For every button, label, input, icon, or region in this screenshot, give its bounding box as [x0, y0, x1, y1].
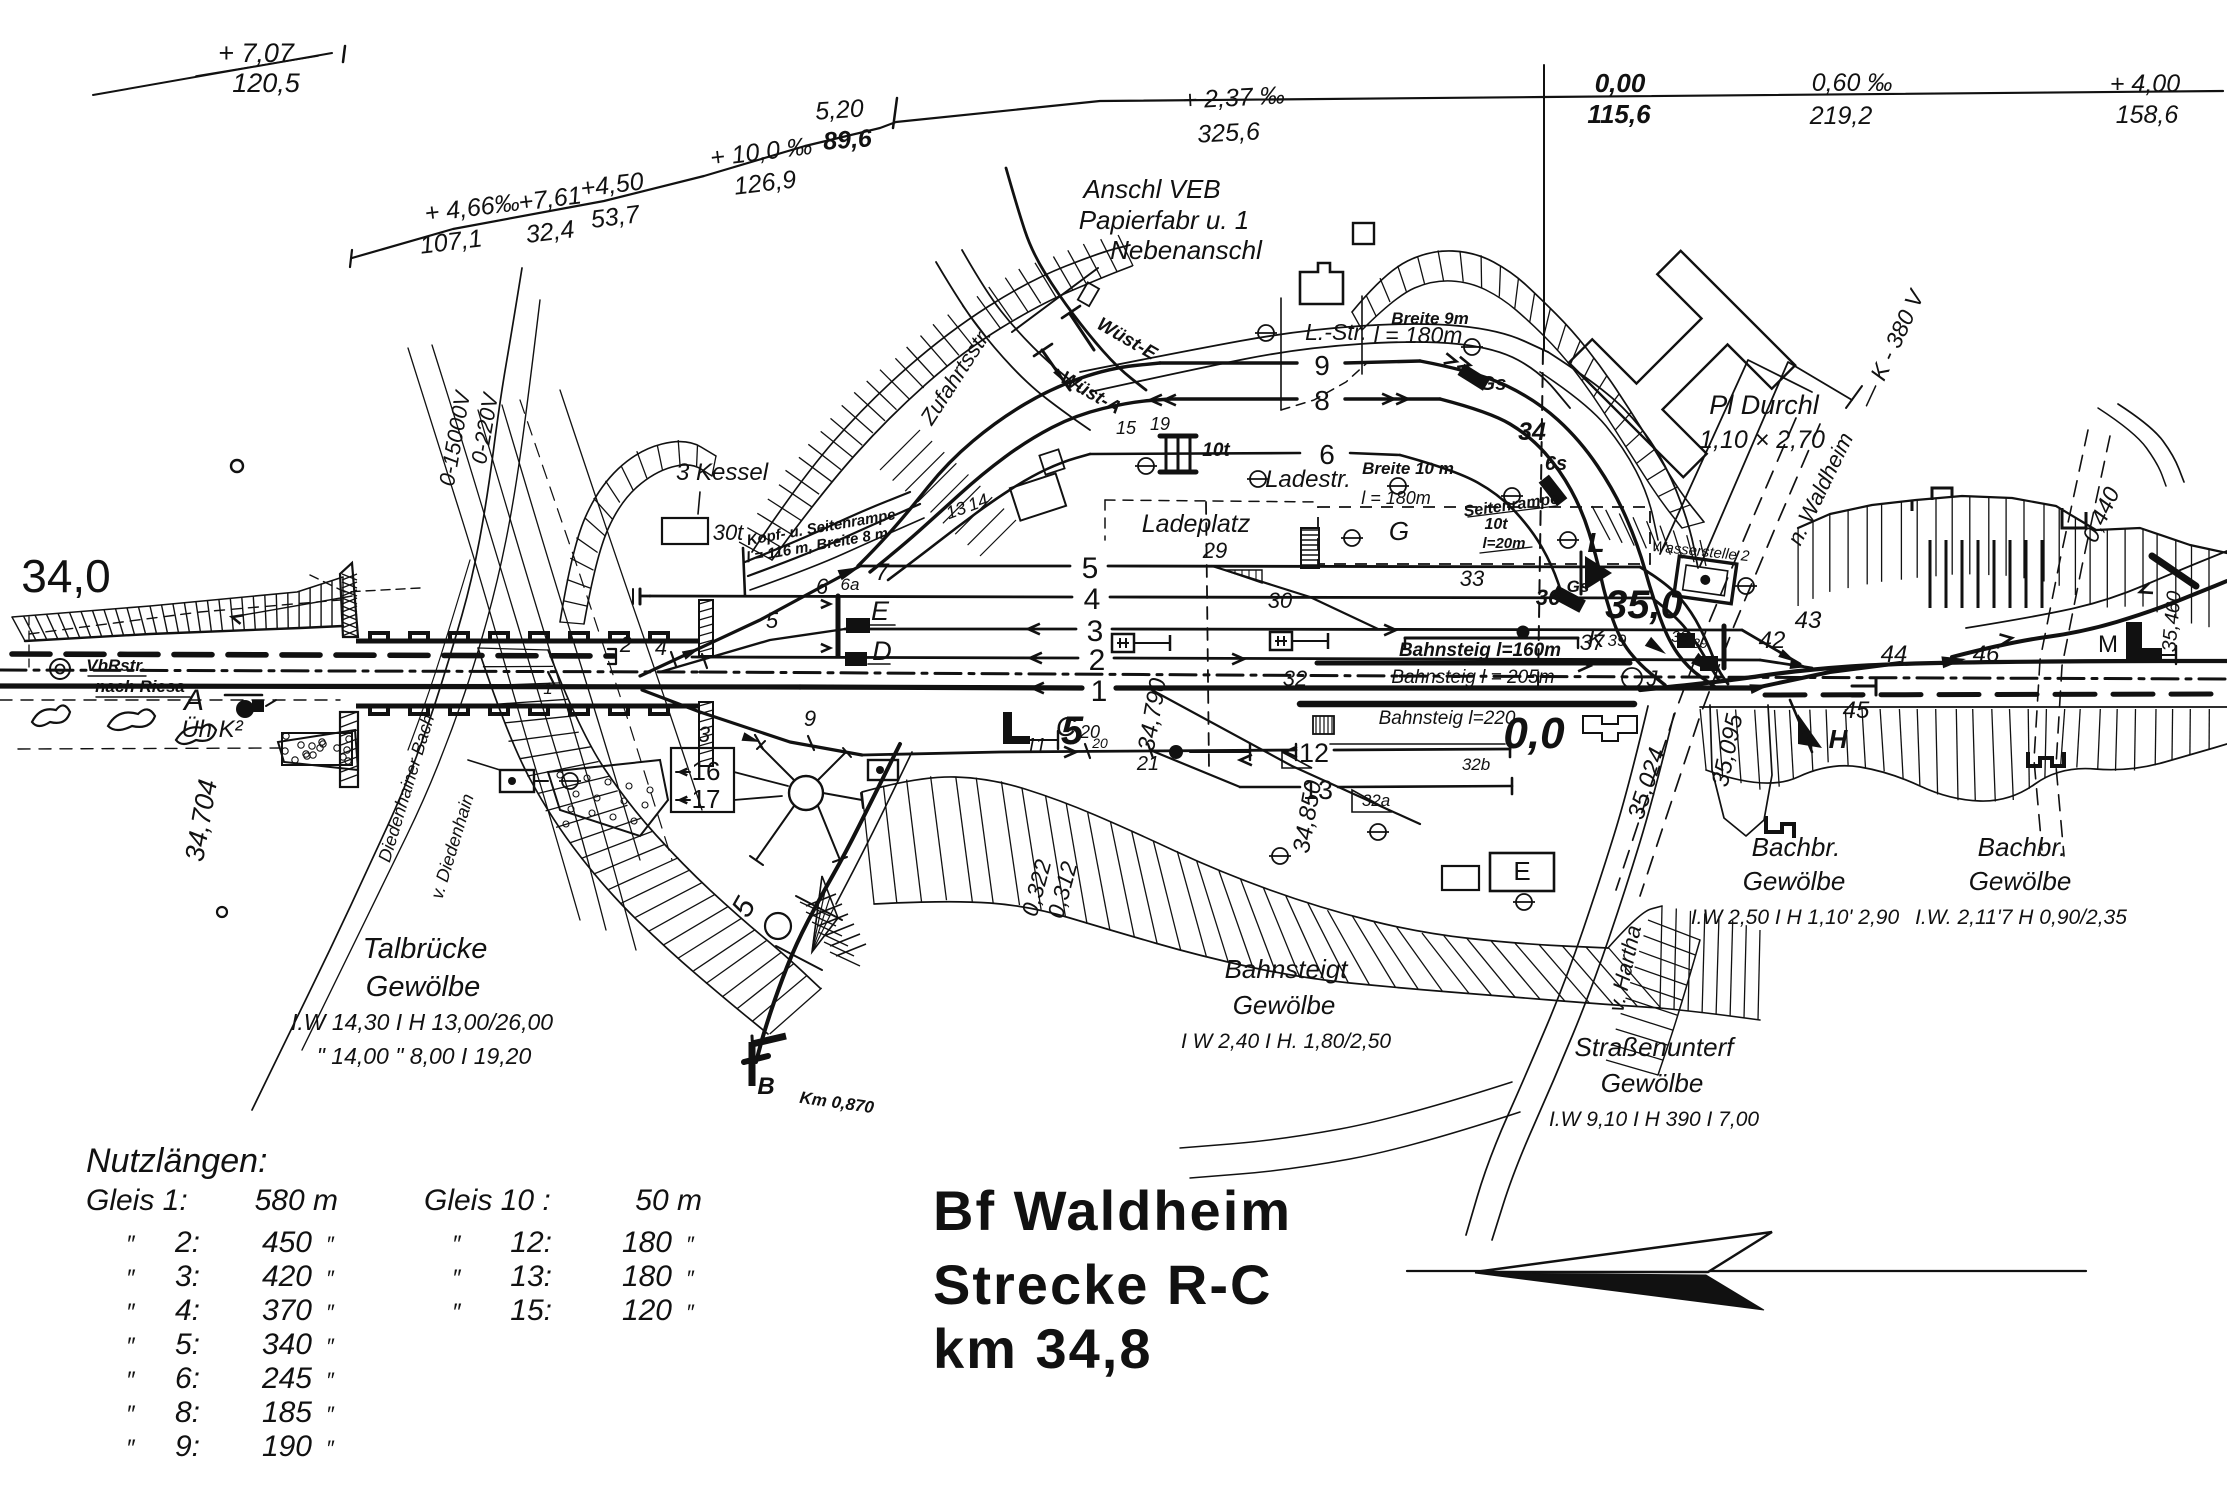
svg-text:″: ″	[326, 1266, 335, 1291]
svg-text:2:: 2:	[174, 1226, 200, 1259]
svg-text:9: 9	[804, 706, 816, 731]
svg-text:33: 33	[1460, 566, 1485, 591]
svg-text:Anschl VEB: Anschl VEB	[1081, 174, 1220, 204]
svg-text:Ladestr.: Ladestr.	[1265, 466, 1351, 493]
svg-text:325,6: 325,6	[1197, 117, 1261, 148]
svg-text:″: ″	[686, 1266, 695, 1291]
svg-text:10t: 10t	[1202, 440, 1230, 461]
svg-text:" 14,00 " 8,00 I 19,20: " 14,00 " 8,00 I 19,20	[317, 1043, 532, 1069]
svg-text:+ 4,00: + 4,00	[2110, 70, 2180, 98]
svg-text:4:: 4:	[175, 1294, 200, 1327]
svg-text:Ladeplatz: Ladeplatz	[1142, 510, 1251, 538]
svg-text:32,4: 32,4	[524, 215, 576, 249]
svg-text:″: ″	[326, 1232, 335, 1257]
svg-text:I.W. 2,11'7 H 0,90/2,35: I.W. 2,11'7 H 0,90/2,35	[1915, 906, 2127, 929]
svg-text:43: 43	[1795, 607, 1822, 634]
svg-text:5: 5	[1082, 552, 1099, 585]
svg-text:20: 20	[1091, 735, 1108, 751]
svg-text:Gewölbe: Gewölbe	[1743, 866, 1846, 896]
svg-text:11: 11	[1026, 735, 1047, 757]
svg-text:5: 5	[766, 608, 779, 633]
svg-text:5,20: 5,20	[814, 94, 865, 125]
svg-text:17: 17	[692, 784, 721, 814]
svg-text:D: D	[872, 636, 892, 666]
svg-text:45: 45	[1843, 697, 1870, 724]
svg-text:16: 16	[692, 756, 721, 786]
svg-text:J: J	[1646, 666, 1659, 691]
svg-text:B: B	[757, 1073, 774, 1100]
svg-text:I.W 9,10 I H 390 I 7,00: I.W 9,10 I H 390 I 7,00	[1549, 1108, 1759, 1131]
svg-text:185: 185	[262, 1396, 312, 1429]
svg-text:+ 7,07: + 7,07	[218, 38, 295, 68]
svg-text:Gewölbe: Gewölbe	[1969, 866, 2072, 896]
svg-text:245: 245	[261, 1362, 312, 1395]
svg-text:120: 120	[622, 1294, 672, 1327]
svg-text:Gleis 10 :: Gleis 10 :	[424, 1184, 551, 1217]
svg-text:l=20m: l=20m	[1483, 535, 1526, 552]
svg-text:nach Riesa: nach Riesa	[95, 677, 185, 696]
svg-text:Gleis 1:: Gleis 1:	[86, 1184, 188, 1217]
svg-text:34: 34	[1518, 418, 1546, 446]
svg-text:Bahnsteig l=220: Bahnsteig l=220	[1379, 708, 1516, 729]
svg-text:+ 2,37 ‰: + 2,37 ‰	[1182, 81, 1285, 114]
svg-text:Bahnsteig l=160m: Bahnsteig l=160m	[1399, 640, 1561, 661]
svg-text:12:: 12:	[510, 1226, 552, 1259]
svg-text:Bachbr.: Bachbr.	[1752, 832, 1841, 862]
svg-text:44: 44	[1881, 641, 1908, 668]
svg-text:2: 2	[619, 632, 632, 657]
svg-text:120,5: 120,5	[232, 68, 301, 98]
svg-text:32a: 32a	[1362, 791, 1390, 810]
svg-text:Strecke R-C: Strecke R-C	[933, 1253, 1272, 1316]
svg-text:580 m: 580 m	[255, 1184, 338, 1217]
svg-text:Gewölbe: Gewölbe	[1233, 990, 1336, 1020]
svg-text:21: 21	[1136, 753, 1159, 775]
svg-text:Breite 10 m: Breite 10 m	[1362, 459, 1454, 478]
svg-text:Bachbr.: Bachbr.	[1978, 832, 2067, 862]
svg-text:42: 42	[1759, 627, 1786, 654]
svg-text:Papierfabr u. 1: Papierfabr u. 1	[1079, 205, 1250, 235]
svg-text:32: 32	[1283, 666, 1307, 691]
svg-text:L.-Str.: L.-Str.	[1305, 319, 1367, 345]
svg-text:39: 39	[1692, 635, 1708, 651]
svg-text:36: 36	[1536, 585, 1561, 610]
svg-text:6:: 6:	[175, 1362, 200, 1395]
svg-text:180: 180	[622, 1260, 672, 1293]
svg-text:8: 8	[1314, 385, 1330, 416]
svg-text:5:: 5:	[175, 1328, 200, 1361]
svg-text:″: ″	[326, 1402, 335, 1427]
svg-text:Straßenunterf: Straßenunterf	[1575, 1032, 1737, 1062]
svg-text:Gewölbe: Gewölbe	[1601, 1068, 1704, 1098]
svg-text:39: 39	[1608, 631, 1627, 650]
svg-text:I.W 2,50 I H 1,10' 2,90: I.W 2,50 I H 1,10' 2,90	[1691, 906, 1900, 929]
svg-text:Bahnsteig l = 205m: Bahnsteig l = 205m	[1391, 667, 1554, 688]
svg-text:Gs: Gs	[1567, 577, 1590, 596]
svg-text:29: 29	[1202, 538, 1227, 563]
svg-text:35,0: 35,0	[1605, 583, 1683, 627]
svg-text:4: 4	[655, 635, 667, 660]
svg-text:370: 370	[262, 1294, 312, 1327]
svg-text:2: 2	[1089, 644, 1106, 677]
svg-text:Üh K²: Üh K²	[181, 716, 243, 743]
svg-text:50 m: 50 m	[635, 1184, 702, 1217]
svg-text:30t: 30t	[713, 520, 744, 545]
svg-text:6: 6	[816, 574, 829, 599]
svg-text:Talbrücke: Talbrücke	[363, 933, 488, 965]
svg-text:M: M	[2098, 631, 2118, 658]
svg-text:9:: 9:	[175, 1430, 200, 1463]
svg-text:34,0: 34,0	[21, 550, 111, 602]
svg-text:G: G	[1389, 516, 1409, 546]
svg-text:Bf Waldheim: Bf Waldheim	[933, 1179, 1292, 1242]
svg-text:E: E	[871, 596, 890, 626]
svg-text:Nutzlängen:: Nutzlängen:	[86, 1142, 267, 1180]
svg-text:8:: 8:	[175, 1396, 200, 1429]
svg-text:15: 15	[1116, 418, 1137, 438]
svg-text:K: K	[1588, 626, 1605, 653]
svg-text:Breite 9m: Breite 9m	[1391, 309, 1468, 328]
svg-text:″: ″	[326, 1368, 335, 1393]
svg-text:1,10 × 2,70: 1,10 × 2,70	[1699, 426, 1825, 454]
svg-text:0,0: 0,0	[1503, 709, 1565, 758]
svg-text:89,6: 89,6	[822, 124, 874, 155]
svg-text:″: ″	[326, 1300, 335, 1325]
svg-text:190: 190	[262, 1430, 312, 1463]
svg-text:Nebenanschl: Nebenanschl	[1110, 235, 1263, 265]
svg-text:115,6: 115,6	[1587, 99, 1651, 129]
svg-text:450: 450	[262, 1226, 312, 1259]
svg-text:12: 12	[1299, 738, 1329, 768]
svg-text:158,6: 158,6	[2116, 101, 2179, 129]
svg-text:Gs: Gs	[1480, 373, 1507, 395]
svg-text:19: 19	[1150, 414, 1170, 434]
svg-text:E: E	[1513, 856, 1530, 886]
svg-text:0,00: 0,00	[1595, 68, 1646, 98]
svg-text:219,2: 219,2	[1809, 102, 1873, 130]
svg-text:H: H	[1829, 724, 1849, 754]
svg-text:Pl Durchl: Pl Durchl	[1709, 390, 1820, 420]
svg-text:I.W 14,30 I H 13,00/26,00: I.W 14,30 I H 13,00/26,00	[291, 1009, 553, 1035]
svg-text:″: ″	[686, 1300, 695, 1325]
svg-text:1: 1	[543, 679, 552, 698]
svg-text:10t: 10t	[1484, 516, 1508, 533]
svg-text:180: 180	[622, 1226, 672, 1259]
svg-text:3 Kessel: 3 Kessel	[676, 459, 769, 486]
svg-text:32b: 32b	[1462, 755, 1490, 774]
svg-text:30: 30	[1268, 588, 1293, 613]
svg-text:9: 9	[1314, 350, 1330, 381]
svg-text:6a: 6a	[841, 575, 860, 594]
svg-text:340: 340	[262, 1328, 312, 1361]
svg-text:15:: 15:	[510, 1294, 552, 1327]
svg-text:0,60 ‰: 0,60 ‰	[1812, 69, 1893, 97]
svg-text:420: 420	[262, 1260, 312, 1293]
svg-text:VbRstr.: VbRstr.	[86, 656, 146, 675]
svg-text:″: ″	[686, 1232, 695, 1257]
svg-text:46: 46	[1973, 641, 2000, 668]
svg-text:C: C	[1056, 711, 1077, 742]
svg-text:3:: 3:	[175, 1260, 200, 1293]
svg-text:38: 38	[1671, 629, 1689, 646]
svg-text:L: L	[1587, 527, 1604, 558]
svg-text:13:: 13:	[510, 1260, 552, 1293]
svg-text:Gewölbe: Gewölbe	[366, 971, 480, 1003]
svg-text:l = 180m: l = 180m	[1361, 488, 1431, 508]
svg-text:3: 3	[698, 722, 711, 747]
svg-text:A: A	[182, 684, 204, 717]
svg-text:″: ″	[326, 1334, 335, 1359]
svg-text:4: 4	[1084, 583, 1101, 616]
svg-text:7: 7	[875, 559, 890, 586]
svg-text:″: ″	[326, 1436, 335, 1461]
svg-text:I W 2,40 I H. 1,80/2,50: I W 2,40 I H. 1,80/2,50	[1181, 1030, 1391, 1053]
svg-text:km 34,8: km 34,8	[933, 1317, 1153, 1380]
svg-text:1: 1	[1091, 675, 1108, 708]
svg-text:Bahnsteigt: Bahnsteigt	[1225, 954, 1350, 984]
svg-text:6s: 6s	[1545, 453, 1567, 475]
